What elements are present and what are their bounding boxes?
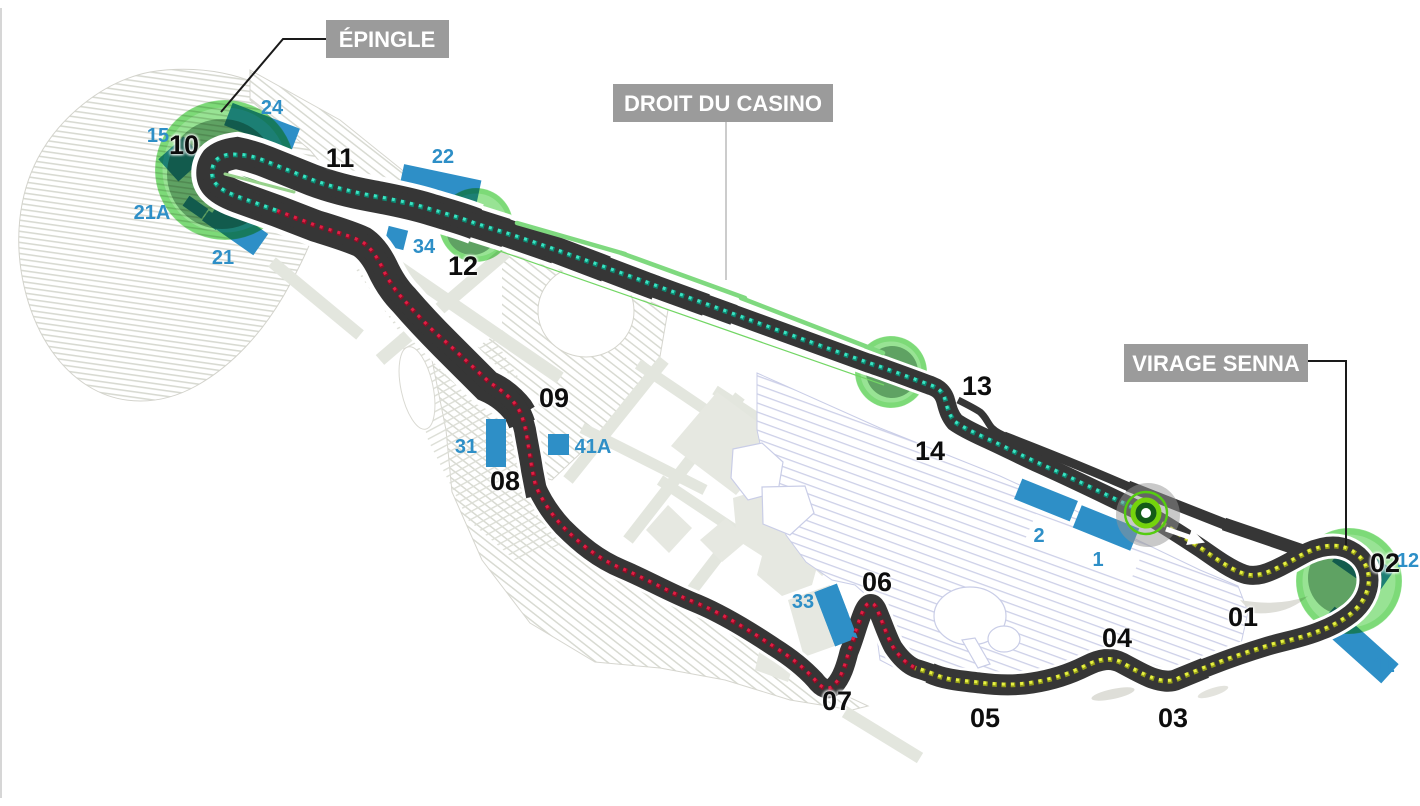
svg-text:15: 15 bbox=[147, 125, 169, 147]
svg-text:10: 10 bbox=[169, 130, 199, 160]
svg-text:07: 07 bbox=[822, 686, 852, 716]
svg-text:08: 08 bbox=[490, 466, 520, 496]
svg-text:21A: 21A bbox=[134, 202, 171, 224]
svg-text:41A: 41A bbox=[575, 436, 612, 458]
svg-text:11: 11 bbox=[1373, 655, 1394, 677]
svg-text:VIRAGE SENNA: VIRAGE SENNA bbox=[1132, 351, 1300, 376]
svg-text:24: 24 bbox=[261, 97, 284, 119]
svg-text:21: 21 bbox=[212, 247, 234, 269]
svg-text:DROIT DU CASINO: DROIT DU CASINO bbox=[624, 91, 822, 116]
svg-text:22: 22 bbox=[432, 146, 454, 168]
svg-text:09: 09 bbox=[539, 383, 569, 413]
svg-text:01: 01 bbox=[1228, 602, 1258, 632]
svg-text:12: 12 bbox=[448, 251, 478, 281]
svg-text:11: 11 bbox=[326, 143, 355, 173]
svg-text:34: 34 bbox=[413, 236, 436, 258]
svg-text:03: 03 bbox=[1158, 703, 1188, 733]
svg-text:04: 04 bbox=[1102, 623, 1132, 653]
svg-text:12: 12 bbox=[1397, 550, 1419, 572]
svg-text:1: 1 bbox=[1092, 549, 1103, 571]
svg-text:31: 31 bbox=[455, 436, 477, 458]
svg-text:13: 13 bbox=[962, 371, 992, 401]
svg-text:2: 2 bbox=[1033, 525, 1044, 547]
svg-text:06: 06 bbox=[862, 567, 892, 597]
svg-text:ÉPINGLE: ÉPINGLE bbox=[339, 27, 436, 52]
svg-text:05: 05 bbox=[970, 703, 1000, 733]
svg-text:02: 02 bbox=[1370, 548, 1400, 578]
svg-text:33: 33 bbox=[792, 591, 814, 613]
svg-text:14: 14 bbox=[915, 436, 945, 466]
